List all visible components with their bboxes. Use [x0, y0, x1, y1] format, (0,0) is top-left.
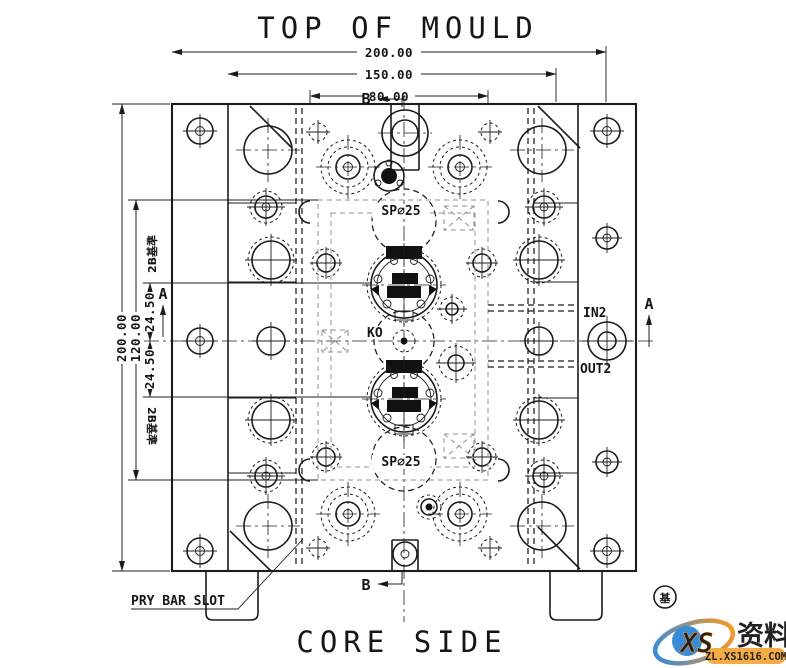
- section-b-arrow-bottom: B: [361, 572, 402, 594]
- dimension-left-24-lower: 24.50: [142, 341, 371, 397]
- svg-text:SP∅25: SP∅25: [381, 204, 420, 219]
- section-a-arrow-right: A: [644, 295, 653, 347]
- svg-text:B: B: [361, 90, 370, 108]
- dimension-top-80: 80.00: [310, 89, 488, 104]
- water-in-label: IN2: [583, 306, 606, 321]
- svg-text:基: 基: [659, 591, 672, 605]
- svg-text:24.50: 24.50: [142, 349, 157, 389]
- svg-text:B: B: [361, 576, 370, 594]
- watermark-site-url: ZL.XS1616.COM: [705, 651, 786, 663]
- svg-text:120.00: 120.00: [128, 314, 143, 362]
- mould-drawing-page: TOP OF MOULD CORE SIDE 200.00 150.00 80.…: [0, 0, 786, 668]
- svg-text:A: A: [158, 285, 167, 303]
- svg-text:2B基準: 2B基準: [145, 235, 159, 273]
- water-out-label: OUT2: [580, 362, 611, 377]
- svg-text:200.00: 200.00: [365, 45, 413, 60]
- watermark-site-name: 资料网: [737, 621, 786, 652]
- core-side-title: CORE SIDE: [296, 625, 507, 659]
- watermark: XS 资料网 ZL.XS1616.COM: [650, 613, 786, 668]
- datum-note-lower: 2B基準: [145, 407, 159, 445]
- svg-text:150.00: 150.00: [365, 67, 413, 82]
- pry-bar-slot-callout: PRY BAR SLOT: [131, 539, 303, 609]
- top-of-mould-title: TOP OF MOULD: [257, 11, 539, 45]
- svg-text:24.50: 24.50: [142, 292, 157, 332]
- water-fitting: [582, 316, 632, 366]
- dimension-left-24-upper: 24.50: [142, 283, 371, 341]
- svg-text:A: A: [644, 295, 653, 313]
- svg-text:2B基準: 2B基準: [145, 407, 159, 445]
- datum-stamp: 基: [654, 586, 676, 608]
- svg-text:80.00: 80.00: [369, 89, 409, 104]
- sprue-locating-ring: [374, 104, 432, 191]
- mould-plan-drawing: TOP OF MOULD CORE SIDE 200.00 150.00 80.…: [0, 0, 786, 668]
- svg-text:SP∅25: SP∅25: [381, 455, 420, 470]
- svg-text:KO: KO: [367, 326, 383, 341]
- moulded-part-lower: [362, 357, 446, 441]
- datum-note-upper: 2B基準: [145, 235, 159, 273]
- svg-text:200.00: 200.00: [114, 314, 129, 362]
- return-pins: [436, 294, 476, 383]
- section-a-arrow-left: A: [158, 285, 167, 337]
- svg-text:PRY BAR SLOT: PRY BAR SLOT: [131, 594, 225, 609]
